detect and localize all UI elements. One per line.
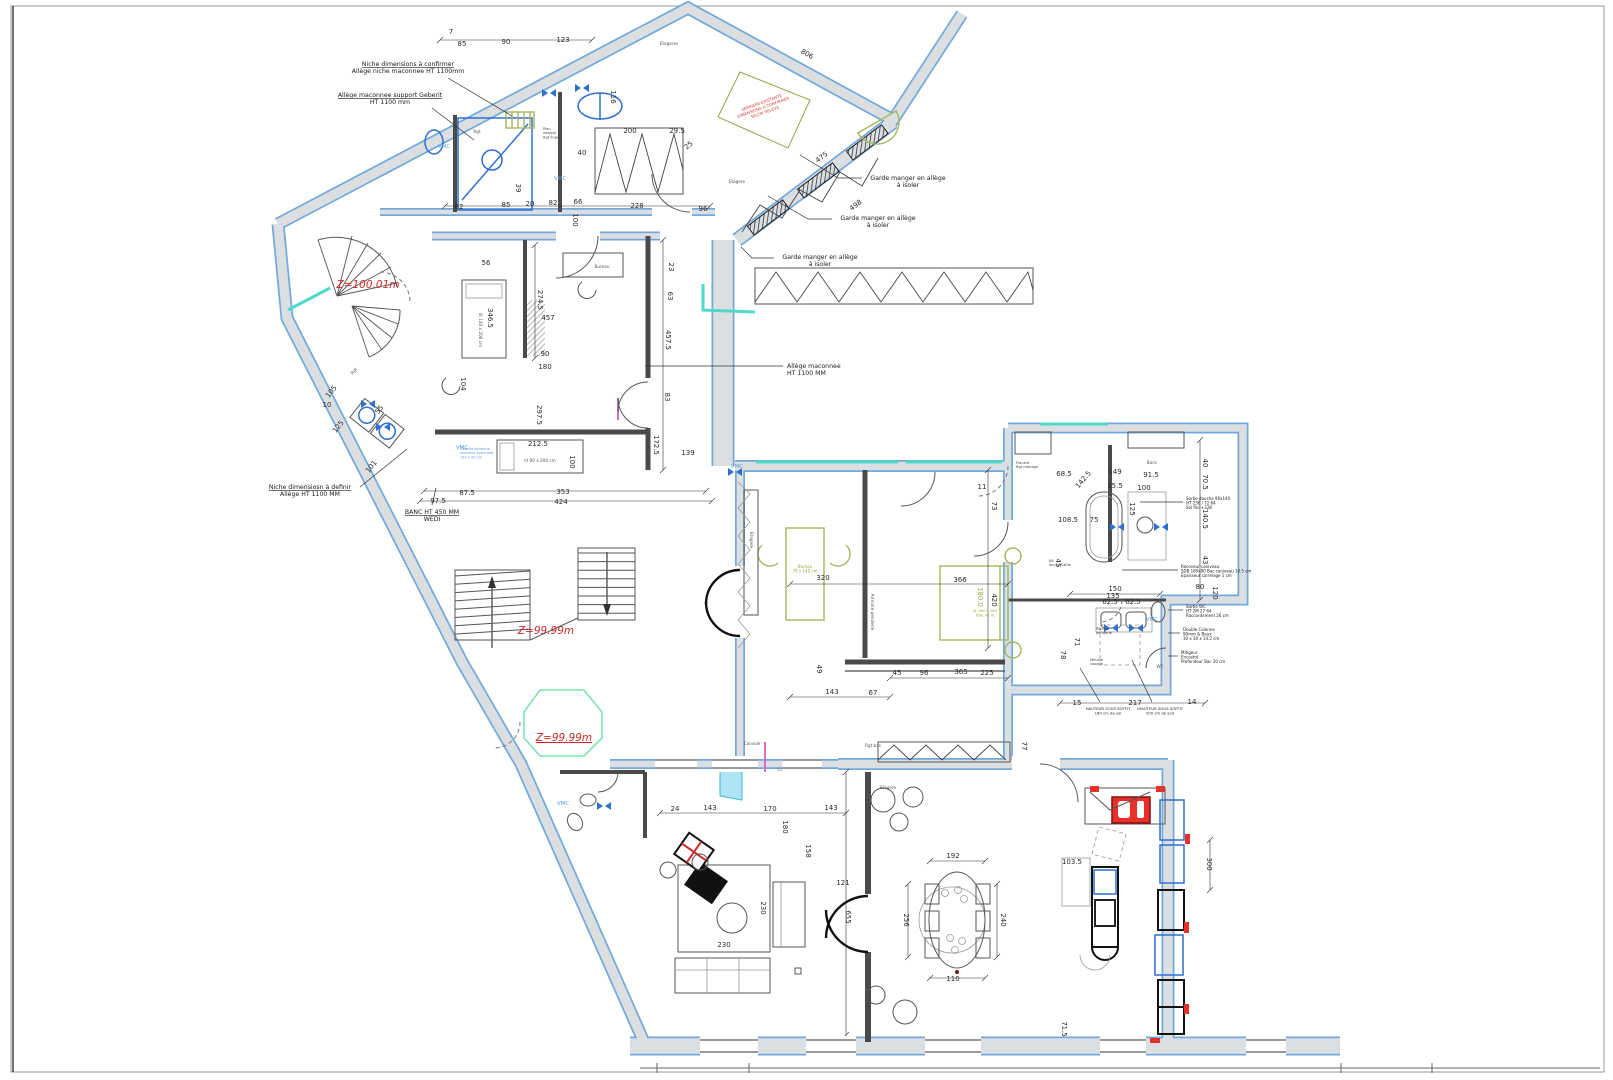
furniture-label: WC (1156, 664, 1163, 669)
dimension-text: 192 (946, 852, 959, 860)
coffee-table (717, 903, 747, 933)
annotation-text: Allège maconnee (787, 362, 841, 370)
dimension-text: 140.5 (1201, 509, 1209, 529)
annotation-text: Sol fini +328 (1186, 505, 1212, 510)
stair-tread (352, 306, 382, 350)
dimension-text: 123 (556, 36, 569, 44)
window-opening (700, 1036, 758, 1056)
furniture-label: Etageres (660, 41, 678, 46)
dimension-text: 78 (1059, 651, 1067, 660)
annotation-text: Niche dimensions à confirmer (362, 60, 455, 68)
furniture-label: Rgt (473, 129, 481, 134)
dimension-text: 139 (681, 449, 694, 457)
dimension-text: 200 (623, 127, 636, 135)
annotation-text: Rgt ménage (1016, 465, 1039, 469)
dimension-text: 420 (990, 593, 998, 606)
annotation-text: Garde manger en allège (870, 174, 945, 182)
dimension-text: 256 (902, 913, 910, 927)
text-layer: 7859012380647549882852082662289610039401… (269, 28, 1252, 1037)
furniture-label: Armoire penderie (870, 594, 875, 631)
dimension-text: 45 (893, 669, 902, 677)
vmc-label: VMC (554, 176, 567, 182)
dimension-text: 25 (683, 140, 695, 152)
vmc-label: VMC (438, 144, 451, 150)
annotation-text: à isoler (809, 260, 832, 268)
window-opening (712, 756, 758, 772)
dimension-text: 15 (1073, 699, 1082, 707)
shelf (744, 490, 758, 615)
annotation-text: Allège niche maconnee HT 1100mm (352, 67, 465, 75)
plant (871, 788, 895, 812)
dimension-text: 62.5 (1102, 598, 1118, 606)
dimension-text: 240 (999, 913, 1007, 926)
dimension-text: 457 (541, 314, 554, 322)
dimension-text: 212.5 (528, 440, 548, 448)
dimension-text: 15.5 (1107, 482, 1123, 490)
dimension-text: 96 (920, 669, 929, 677)
floor-plan-page: 7859012380647549882852082662289610039401… (0, 0, 1613, 1080)
sofa-2 (675, 958, 770, 993)
level-label: Z=99.99m (517, 625, 574, 637)
annotation-text: 180 cm de sol (1095, 710, 1122, 715)
dimension-text: 143 (825, 688, 838, 696)
annotation-text: vasque (1090, 662, 1104, 666)
dimension-text: 14 (1188, 698, 1197, 706)
window-opening (806, 1036, 856, 1056)
dimension-text: 320 (816, 574, 829, 582)
annotation-text: 30 x 30 x 14.2 cm (1183, 636, 1219, 641)
dimension-text: 180 (781, 820, 789, 833)
glass-block (720, 768, 742, 800)
dimension-text: 91.5 (1143, 471, 1159, 479)
dimension-text: 87.5 (459, 489, 475, 497)
dimension-text: 73 (990, 502, 998, 511)
dimension-text: 655 (844, 910, 852, 923)
dimension-text: 806 (799, 47, 815, 61)
annotation-leader (1132, 660, 1152, 702)
stair-clearance (524, 690, 602, 756)
annotation-text: Allège maconnee support Geberit (338, 91, 443, 99)
valve-icon (575, 84, 589, 92)
dimension-text: 457.5 (664, 330, 672, 350)
dimension-text: 353 (556, 488, 569, 496)
dimension-text: 149 (1108, 468, 1121, 476)
annotation-text: Garde manger en allège (782, 253, 857, 261)
dimension-text: 125 (1128, 502, 1136, 515)
furniture-label: lit 90 x 200 cm (524, 458, 555, 463)
stair-tread (352, 306, 400, 310)
dimension-text: 120 (1211, 586, 1219, 599)
dimension-text: 300 (1205, 857, 1213, 870)
dimension-text: 103.5 (1062, 858, 1082, 866)
annotation-text: tête de lit (976, 612, 995, 617)
dimension-text: 230 (717, 941, 730, 949)
dimension-text: 96 (699, 205, 708, 213)
armchair-dark (684, 862, 728, 904)
window-opening (1100, 1036, 1146, 1056)
dimension-text: 39 (514, 184, 522, 193)
stair-tread (352, 306, 398, 324)
annotation-text: Profondeur Bac 20 cm (1181, 659, 1225, 664)
dimension-text: 85 (458, 40, 467, 48)
dimension-text: 180 (538, 363, 551, 371)
annotation-text: à isoler (867, 221, 890, 229)
sofa (773, 882, 805, 947)
dimension-text: 83 (663, 393, 671, 402)
bed (462, 280, 506, 358)
dimension-text: 90 (541, 350, 550, 358)
dimension-text: 365 (954, 668, 967, 676)
dimension-text: 366 (953, 576, 967, 584)
dimension-text: 49 (815, 665, 823, 674)
annotation-text: Epaisseur carrelage 1 cm (1181, 573, 1232, 578)
annotation-text: WEDI (424, 516, 441, 523)
dimension-text: 85 (502, 201, 511, 209)
dimension-text: 68.5 (1056, 470, 1072, 478)
dimension-text: 104 (459, 377, 467, 391)
dimension-text: 424 (554, 498, 568, 506)
dimension-text: 143 (824, 804, 837, 812)
dimension-text: 180.0 (976, 587, 984, 607)
dimension-text: 228 (630, 202, 643, 210)
basin (1137, 517, 1153, 533)
annotation-leader (741, 247, 774, 258)
dimension-text: 142.5 (1074, 469, 1093, 489)
dimension-text: 230 (759, 901, 767, 914)
annotation-text: 200 cm de sol) (1146, 710, 1175, 715)
dimension-text: 62.5 (1125, 598, 1141, 606)
window-opening (655, 756, 697, 772)
dimension-text: 108.5 (1058, 516, 1078, 524)
dimension-text: 23 (667, 263, 675, 272)
dimension-text: 24 (671, 805, 680, 813)
annotation-text: 70 x 140 cm (792, 569, 817, 574)
furniture-label: Console (744, 741, 761, 746)
annotation-text: Acces Cable (1049, 563, 1072, 567)
dimension-text: 110 (946, 975, 959, 983)
dimension-text: 82 (549, 199, 558, 207)
annotation-text: Rgt linge (543, 135, 560, 139)
furniture-label: Etagere (880, 785, 897, 790)
glazing-accents (288, 284, 1108, 800)
dimension-text: 71 (1073, 638, 1081, 647)
dimension-text: 97.5 (430, 497, 446, 505)
dimension-text: 40 (1201, 459, 1209, 468)
annotation-text: HT 1100 MM (787, 370, 826, 377)
dimension-text: 75 (1090, 516, 1099, 524)
furniture-label: Banc (1147, 460, 1158, 465)
annotation-text: penderie (1096, 631, 1113, 635)
dimension-text: 67 (869, 689, 878, 697)
annotation-text: BANC HT 450 MM (405, 509, 459, 516)
furniture-label: Rgt bas (865, 743, 881, 748)
dimension-text: 158 (804, 844, 812, 857)
dimension-text: 29.5 (669, 127, 685, 135)
dimension-text: 66 (574, 198, 583, 206)
dimension-text: 143 (703, 804, 716, 812)
window-opening (782, 756, 822, 772)
dimension-text: 82 (455, 203, 464, 211)
dimension-text: 77 (1020, 742, 1028, 751)
dimension-text: 63 (666, 292, 674, 301)
furniture-label: lit 140 x 200 cm (478, 313, 483, 347)
dimension-text: 56 (482, 259, 491, 267)
vmc-label: VMC (557, 801, 570, 807)
annotation-text: Allège HT 1100 MM (280, 490, 340, 498)
stair-tread (352, 306, 369, 357)
annotation-text: Niche dimensiosn à definir (269, 483, 352, 491)
dimension-text: 225 (980, 669, 993, 677)
dimension-text: 498 (848, 198, 863, 212)
annotation-text: 150 x 90 cm (460, 455, 482, 459)
annotation-text: Garde manger en allège (840, 214, 915, 222)
dimension-text: 116 (609, 90, 617, 104)
valve-icon (597, 802, 611, 810)
dimension-text: 80 (1196, 583, 1205, 591)
window-opening (925, 1036, 981, 1056)
furniture-label: Rgt (350, 366, 359, 375)
dimension-text: 90 (502, 38, 511, 46)
dimension-text: 170 (763, 805, 776, 813)
stair-tread (455, 571, 530, 576)
floor-marker (955, 970, 959, 974)
stair-arrow (603, 604, 611, 616)
level-label: Z=100.01m (336, 279, 400, 291)
dimension-text: 10 (323, 401, 332, 409)
furniture-label: Etagere (729, 179, 746, 184)
annotation-text: à isoler (897, 181, 920, 189)
side-table (660, 862, 676, 878)
annotation-text: HT 1100 mm (370, 99, 410, 106)
vmc-label: VMC (456, 445, 469, 451)
dimension-text: 297.5 (535, 405, 543, 425)
window-opening (1246, 1036, 1286, 1056)
stair-tread (352, 306, 392, 338)
dimension-text: 20 (526, 200, 535, 208)
dimension-text: 7 (449, 28, 453, 36)
floor-plan-drawing: 7859012380647549882852082662289610039401… (0, 0, 1613, 1080)
dimension-text: 172.5 (652, 435, 660, 455)
dimension-text: 70.5 (1201, 474, 1209, 490)
dimension-text: 274.5 (536, 290, 544, 310)
dimension-text: 100 (568, 455, 576, 468)
furniture-label: Bureau (595, 264, 610, 269)
dimension-text: 71.5 (1060, 1021, 1068, 1037)
furniture-label: Etagere (749, 532, 754, 549)
stair-tread (318, 240, 337, 296)
dimension-text: 121 (836, 879, 849, 887)
dimension-text: 40 (578, 149, 587, 157)
level-label: Z=99.99m (535, 732, 592, 744)
annotation-text: Raccordement 26 cm (1186, 613, 1229, 618)
dimension-text: 346.5 (486, 308, 494, 328)
vmc-label: VMC (731, 464, 744, 470)
vmc-label: VMC (1146, 617, 1159, 623)
dimension-text: 100 (571, 213, 579, 226)
dimension-text: 100 (1137, 484, 1150, 492)
dimension-text: 11 (978, 483, 987, 491)
page-border (11, 6, 1604, 1073)
